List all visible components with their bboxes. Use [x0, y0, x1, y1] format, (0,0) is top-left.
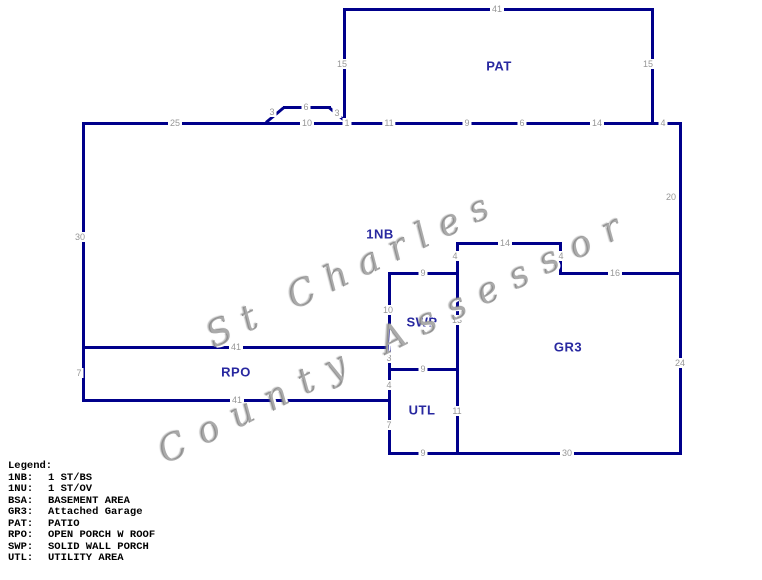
- legend: Legend: 1NB: 1 ST/BS 1NU: 1 ST/OV BSA: B…: [8, 461, 155, 565]
- area-label-pat: PAT: [486, 59, 512, 74]
- wall-segment: [679, 122, 682, 455]
- legend-code: GR3:: [8, 507, 48, 519]
- dimension-label: 15: [335, 59, 349, 69]
- dimension-label: 3: [332, 108, 341, 118]
- dimension-label: 10: [381, 305, 395, 315]
- wall-segment: [388, 452, 682, 455]
- dimension-label: 11: [382, 118, 395, 128]
- dimension-label: 15: [641, 59, 655, 69]
- dimension-label: 6: [517, 118, 526, 128]
- watermark-line1: St Charles: [201, 182, 509, 357]
- legend-code: UTL:: [8, 553, 48, 565]
- dimension-label: 25: [168, 118, 182, 128]
- dimension-label: 24: [673, 358, 687, 368]
- dimension-label: 10: [300, 118, 314, 128]
- dimension-label: 9: [462, 118, 471, 128]
- dimension-label: 9: [418, 448, 427, 458]
- dimension-label: 30: [73, 232, 87, 242]
- dimension-label: 14: [590, 118, 604, 128]
- dimension-label: 9: [418, 268, 427, 278]
- dimension-label: 7: [74, 368, 83, 378]
- dimension-label: 7: [384, 420, 393, 430]
- dimension-label: 13: [450, 315, 464, 325]
- dimension-label: 41: [490, 4, 504, 14]
- dimension-label: 20: [664, 192, 678, 202]
- dimension-label: 3: [384, 353, 393, 363]
- legend-entry: 1NU: 1 ST/OV: [8, 484, 155, 496]
- legend-entry: UTL: UTILITY AREA: [8, 553, 155, 565]
- watermark-line2: County Assessor: [153, 201, 643, 473]
- dimension-label: 14: [498, 238, 512, 248]
- legend-desc: Attached Garage: [48, 507, 143, 519]
- area-label-1nb: 1NB: [366, 227, 394, 242]
- legend-entry: GR3: Attached Garage: [8, 507, 155, 519]
- legend-entry: RPO: OPEN PORCH W ROOF: [8, 530, 155, 542]
- dimension-label: 30: [560, 448, 574, 458]
- dimension-label: 4: [658, 118, 667, 128]
- dimension-label: 9: [418, 364, 427, 374]
- dimension-label: 11: [450, 406, 463, 416]
- legend-title: Legend:: [8, 461, 155, 473]
- dimension-label: 41: [230, 395, 244, 405]
- dimension-label: 6: [301, 102, 310, 112]
- legend-code: 1NU:: [8, 484, 48, 496]
- legend-desc: UTILITY AREA: [48, 553, 124, 565]
- area-label-swp: SWP: [406, 315, 437, 330]
- legend-code: RPO:: [8, 530, 48, 542]
- dimension-label: 4: [384, 380, 393, 390]
- dimension-label: 4: [556, 251, 565, 261]
- dimension-label: 3: [267, 107, 276, 117]
- assessor-sketch-page: 4115153632510111961443020144491610134132…: [0, 0, 762, 580]
- dimension-label: 1: [342, 118, 351, 128]
- legend-desc: 1 ST/OV: [48, 484, 92, 496]
- area-label-gr3: GR3: [554, 340, 582, 355]
- dimension-label: 4: [450, 251, 459, 261]
- dimension-label: 41: [229, 342, 243, 352]
- legend-desc: OPEN PORCH W ROOF: [48, 530, 155, 542]
- dimension-label: 16: [608, 268, 622, 278]
- area-label-rpo: RPO: [221, 365, 251, 380]
- area-label-utl: UTL: [409, 403, 436, 418]
